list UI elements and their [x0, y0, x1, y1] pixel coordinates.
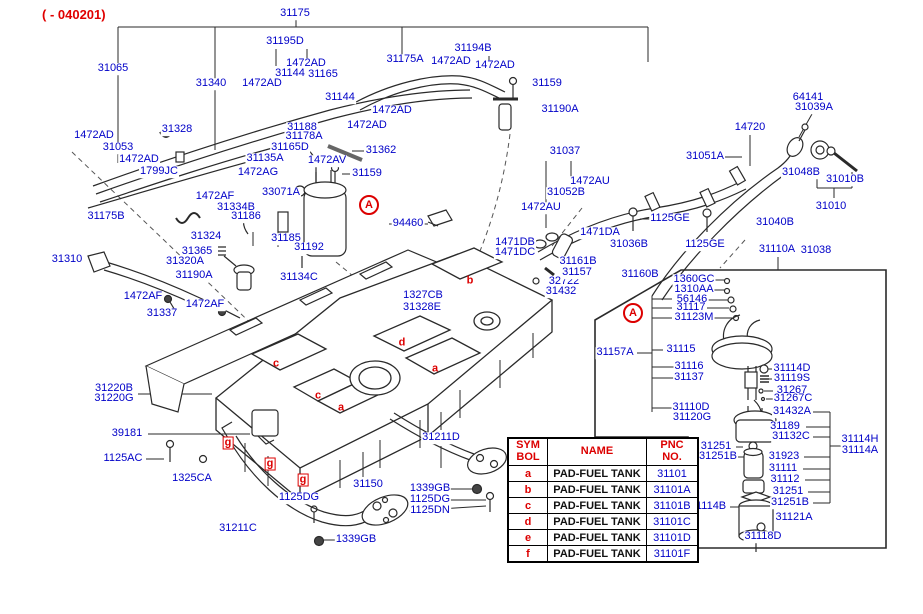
part-label-31251b: 31251B	[698, 451, 738, 463]
part-label-31186: 31186	[230, 211, 262, 223]
table-header-name: NAME	[548, 438, 647, 466]
part-label-31112: 31112	[770, 474, 801, 486]
part-label-31159: 31159	[351, 168, 383, 180]
part-label-31010b: 31010B	[825, 174, 865, 186]
part-label-31123m: 31123M	[674, 312, 715, 324]
tank-pad-symbol-g: g	[223, 437, 234, 450]
part-label-31211c: 31211C	[218, 523, 258, 535]
part-label-1472ad: 1472AD	[474, 60, 516, 72]
part-label-1472ad: 1472AD	[73, 130, 115, 142]
part-label-33071a: 33071A	[261, 187, 301, 199]
table-cell-name: PAD-FUEL TANK	[548, 498, 647, 514]
part-label-1472ad: 1472AD	[371, 105, 413, 117]
table-row: bPAD-FUEL TANK31101A	[508, 482, 698, 498]
part-label-31175a: 31175A	[385, 54, 424, 66]
table-row: aPAD-FUEL TANK31101	[508, 466, 698, 482]
part-label-31010: 31010	[815, 201, 848, 213]
table-cell-name: PAD-FUEL TANK	[548, 514, 647, 530]
part-label-1325ca: 1325CA	[171, 473, 213, 485]
part-label-1125ge: 1125GE	[649, 213, 691, 225]
part-label-1125dn: 1125DN	[409, 505, 451, 517]
part-label-31134c: 31134C	[279, 272, 319, 284]
part-label-31114a: 31114A	[841, 445, 879, 457]
tank-pad-symbol-a: a	[337, 403, 345, 414]
part-label-31039a: 31039A	[794, 102, 834, 114]
part-label-31267c: 31267C	[773, 393, 814, 405]
part-label-14720: 14720	[734, 122, 767, 134]
part-label-31310: 31310	[51, 254, 84, 266]
revision-code: ( - 040201)	[42, 7, 106, 22]
part-label-31135a: 31135A	[245, 153, 284, 165]
part-label-31251b: 31251B	[770, 497, 810, 509]
part-label-31320a: 31320A	[165, 256, 205, 268]
part-label-39181: 39181	[111, 428, 144, 440]
table-header-symbol: SYMBOL	[508, 438, 548, 466]
part-label-1471dc: 1471DC	[494, 247, 536, 259]
part-label-31159: 31159	[531, 78, 563, 90]
part-label-31110a: 31110A	[758, 244, 796, 256]
part-label-31037: 31037	[549, 146, 582, 158]
part-label-31040b: 31040B	[755, 217, 795, 229]
part-label-31052b: 31052B	[546, 187, 586, 199]
part-label-1125ge: 1125GE	[684, 239, 726, 251]
part-label-31324: 31324	[190, 231, 223, 243]
part-label-31328e: 31328E	[402, 302, 442, 314]
table-row: dPAD-FUEL TANK31101C	[508, 514, 698, 530]
table-cell-sym: c	[508, 498, 548, 514]
table-cell-pnc: 31101D	[647, 530, 699, 546]
part-label-1472ad: 1472AD	[118, 154, 160, 166]
part-label-31194b: 31194B	[453, 43, 492, 55]
label-layer: ( - 040201) 3117531195D31065313401472AD3…	[0, 0, 923, 614]
part-label-31190a: 31190A	[174, 270, 213, 282]
tank-pad-symbol-g: g	[298, 474, 309, 487]
parts-table-body: aPAD-FUEL TANK31101bPAD-FUEL TANK31101Ac…	[508, 466, 698, 563]
part-label-31053: 31053	[102, 142, 135, 154]
part-label-1472ag: 1472AG	[237, 167, 279, 179]
table-row: cPAD-FUEL TANK31101B	[508, 498, 698, 514]
part-label-31923: 31923	[768, 451, 801, 463]
part-label-31195d: 31195D	[265, 36, 305, 48]
table-cell-sym: d	[508, 514, 548, 530]
part-label-31432a: 31432A	[772, 406, 812, 418]
part-label-31192: 31192	[293, 242, 325, 254]
table-row: ePAD-FUEL TANK31101D	[508, 530, 698, 546]
part-label-1125ac: 1125AC	[103, 453, 144, 465]
part-label-1472ad: 1472AD	[346, 120, 388, 132]
part-label-31120g: 31120G	[672, 412, 712, 424]
tank-pad-symbol-c: c	[314, 391, 322, 402]
table-cell-name: PAD-FUEL TANK	[548, 530, 647, 546]
part-label-31119s: 31119S	[773, 373, 811, 385]
part-label-1472ad: 1472AD	[430, 56, 472, 68]
part-label-1125dg: 1125DG	[278, 492, 320, 504]
tank-pad-symbol-a: a	[431, 364, 439, 375]
part-label-31175b: 31175B	[86, 211, 125, 223]
parts-table-header: SYMBOLNAMEPNCNO.	[508, 438, 698, 466]
part-label-94460: 94460	[392, 218, 425, 230]
table-row: fPAD-FUEL TANK31101F	[508, 546, 698, 563]
part-label-31121a: 31121A	[774, 512, 813, 524]
table-cell-pnc: 31101	[647, 466, 699, 482]
table-header-pnc: PNCNO.	[647, 438, 699, 466]
table-cell-sym: e	[508, 530, 548, 546]
part-label-31362: 31362	[365, 145, 398, 157]
part-label-1327cb: 1327CB	[402, 290, 444, 302]
table-cell-name: PAD-FUEL TANK	[548, 546, 647, 563]
parts-diagram-page: ( - 040201) 3117531195D31065313401472AD3…	[0, 0, 923, 614]
part-label-31220g: 31220G	[93, 393, 134, 405]
part-label-31038: 31038	[800, 245, 833, 257]
table-cell-pnc: 31101B	[647, 498, 699, 514]
part-label-31328: 31328	[161, 124, 194, 136]
part-label-31165: 31165	[307, 69, 339, 81]
part-label-31157a: 31157A	[595, 347, 634, 359]
part-label-31115: 31115	[666, 344, 697, 356]
part-label-1339gb: 1339GB	[335, 534, 377, 546]
part-label-31157: 31157	[561, 267, 593, 279]
table-cell-name: PAD-FUEL TANK	[548, 466, 647, 482]
parts-table: SYMBOLNAMEPNCNO. aPAD-FUEL TANK31101bPAD…	[507, 437, 699, 563]
detail-view-marker-a: A	[359, 195, 379, 215]
table-cell-sym: f	[508, 546, 548, 563]
part-label-1472ad: 1472AD	[241, 78, 283, 90]
part-label-31036b: 31036B	[609, 239, 649, 251]
part-label-31175: 31175	[279, 8, 311, 20]
part-label-1472af: 1472AF	[123, 291, 164, 303]
part-label-1472af: 1472AF	[185, 299, 226, 311]
part-label-1472av: 1472AV	[307, 155, 347, 167]
part-label-1471da: 1471DA	[579, 227, 621, 239]
part-label-31160b: 31160B	[620, 269, 659, 281]
part-label-31144: 31144	[324, 92, 356, 104]
tank-pad-symbol-b: b	[466, 276, 475, 287]
part-label-31337: 31337	[146, 308, 179, 320]
table-cell-pnc: 31101A	[647, 482, 699, 498]
table-cell-sym: a	[508, 466, 548, 482]
part-label-31137: 31137	[673, 372, 705, 384]
part-label-31340: 31340	[195, 78, 228, 90]
table-cell-sym: b	[508, 482, 548, 498]
table-cell-name: PAD-FUEL TANK	[548, 482, 647, 498]
part-label-31118d: 31118D	[744, 531, 783, 543]
part-label-31051a: 31051A	[685, 151, 725, 163]
part-label-31211d: 31211D	[421, 432, 461, 444]
part-label-31065: 31065	[97, 63, 130, 75]
table-cell-pnc: 31101F	[647, 546, 699, 563]
tank-pad-symbol-c: c	[272, 359, 280, 370]
part-label-1472au: 1472AU	[520, 202, 562, 214]
part-label-31132c: 31132C	[771, 431, 811, 443]
part-label-31432: 31432	[545, 286, 578, 298]
part-label-31048b: 31048B	[781, 167, 821, 179]
tank-pad-symbol-d: d	[398, 338, 407, 349]
tank-pad-symbol-g: g	[265, 458, 276, 471]
part-label-31150: 31150	[352, 479, 384, 491]
part-label-31190a: 31190A	[540, 104, 579, 116]
detail-view-marker-a: A	[623, 303, 643, 323]
part-label-1799jc: 1799JC	[139, 166, 179, 178]
table-cell-pnc: 31101C	[647, 514, 699, 530]
